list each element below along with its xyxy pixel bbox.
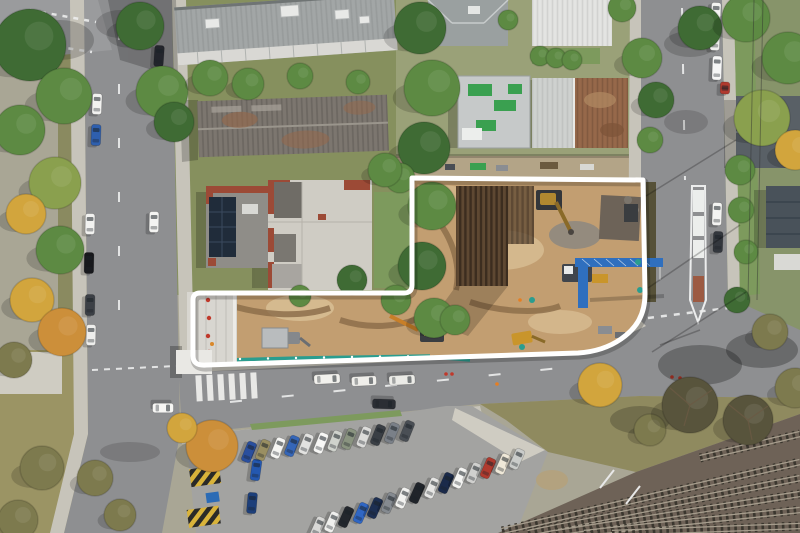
car (312, 370, 341, 384)
rusty-roof-building (532, 78, 628, 148)
solar-panel-house (206, 186, 268, 268)
piling-field (456, 186, 508, 286)
embankment-dirt-patch (536, 470, 568, 490)
construction-house-green-panels (458, 76, 530, 148)
car (82, 213, 95, 236)
car (146, 211, 159, 234)
car (151, 400, 174, 413)
car (82, 294, 95, 317)
car (349, 372, 377, 386)
car (150, 45, 165, 69)
rubble-pile (549, 221, 601, 249)
car (87, 124, 101, 147)
car (709, 231, 723, 254)
warehouse-building (197, 95, 389, 158)
disabled-bay-marking (206, 491, 220, 503)
piling-field (508, 186, 534, 244)
garage-roof (774, 254, 800, 270)
patio (272, 264, 302, 288)
car (716, 82, 729, 96)
car (387, 371, 416, 385)
aerial-photo (0, 0, 800, 533)
car (243, 492, 258, 516)
piling-equipment (624, 204, 638, 222)
chimney (318, 214, 326, 220)
site-shed (262, 328, 288, 348)
car (708, 56, 722, 82)
car (708, 202, 722, 227)
car (370, 395, 395, 409)
site-materials (598, 326, 612, 334)
